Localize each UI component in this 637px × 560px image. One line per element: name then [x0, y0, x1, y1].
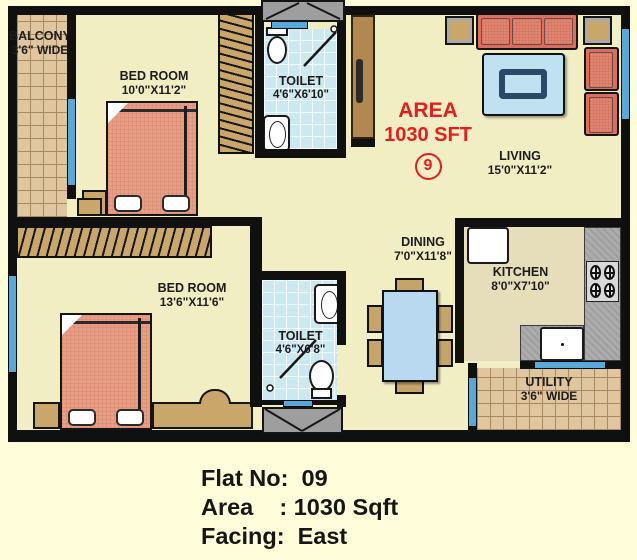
room-dims: 3'6" WIDE: [485, 390, 613, 404]
room-dims: 4'6"X6'8": [263, 344, 338, 357]
area-line: Area : 1030 Sqft: [201, 493, 398, 522]
label-bedroom1: BED ROOM 10'0"X11'2": [95, 69, 213, 97]
door-hinge: [267, 385, 273, 391]
floor-plan: BALCONY 3'6" WIDE BED ROOM 10'0"X11'2" T…: [0, 0, 637, 448]
label-utility: UTILITY 3'6" WIDE: [485, 375, 613, 403]
room-name: BALCONY: [4, 29, 76, 44]
label-living: LIVING 15'0"X11'2": [465, 149, 575, 177]
label-toilet1: TOILET 4'6"X6'10": [264, 74, 338, 102]
room-name: KITCHEN: [463, 265, 578, 280]
room-dims: 15'0"X11'2": [465, 164, 575, 178]
flat-info: Flat No: 09 Area : 1030 Sqft Facing: Eas…: [201, 464, 398, 551]
room-dims: 3'6" WIDE: [4, 44, 76, 58]
room-name: TOILET: [264, 74, 338, 89]
shaft-line: [266, 3, 299, 19]
room-name: DINING: [368, 235, 478, 250]
label-bedroom2: BED ROOM 13'6"X11'6": [132, 281, 252, 309]
room-name: BED ROOM: [95, 69, 213, 84]
room-dims: 4'6"X6'10": [264, 89, 338, 102]
label-toilet2: TOILET 4'6"X6'8": [263, 329, 338, 357]
label-balcony: BALCONY 3'6" WIDE: [4, 29, 76, 57]
duct-line: [302, 409, 340, 431]
flat-number-circle: 9: [415, 153, 442, 180]
room-name: UTILITY: [485, 375, 613, 390]
area-badge: AREA 1030 SFT 9: [376, 99, 480, 180]
flat-no-line: Flat No: 09: [201, 464, 398, 493]
shaft-line: [307, 3, 340, 19]
room-name: LIVING: [465, 149, 575, 164]
room-dims: 8'0"X7'10": [463, 280, 578, 294]
label-kitchen: KITCHEN 8'0"X7'10": [463, 265, 578, 293]
room-dims: 7'0"X11'8": [368, 250, 478, 264]
door-hinge: [331, 26, 337, 32]
room-name: BED ROOM: [132, 281, 252, 296]
door-swing-toilet1: [304, 32, 336, 66]
duct-line: [265, 409, 302, 431]
room-dims: 10'0"X11'2": [95, 84, 213, 98]
label-dining: DINING 7'0"X11'8": [368, 235, 478, 263]
room-name: TOILET: [263, 329, 338, 344]
room-dims: 13'6"X11'6": [132, 296, 252, 310]
area-label: AREA: [376, 99, 480, 123]
area-value: 1030 SFT: [376, 123, 480, 147]
facing-line: Facing: East: [201, 522, 398, 551]
